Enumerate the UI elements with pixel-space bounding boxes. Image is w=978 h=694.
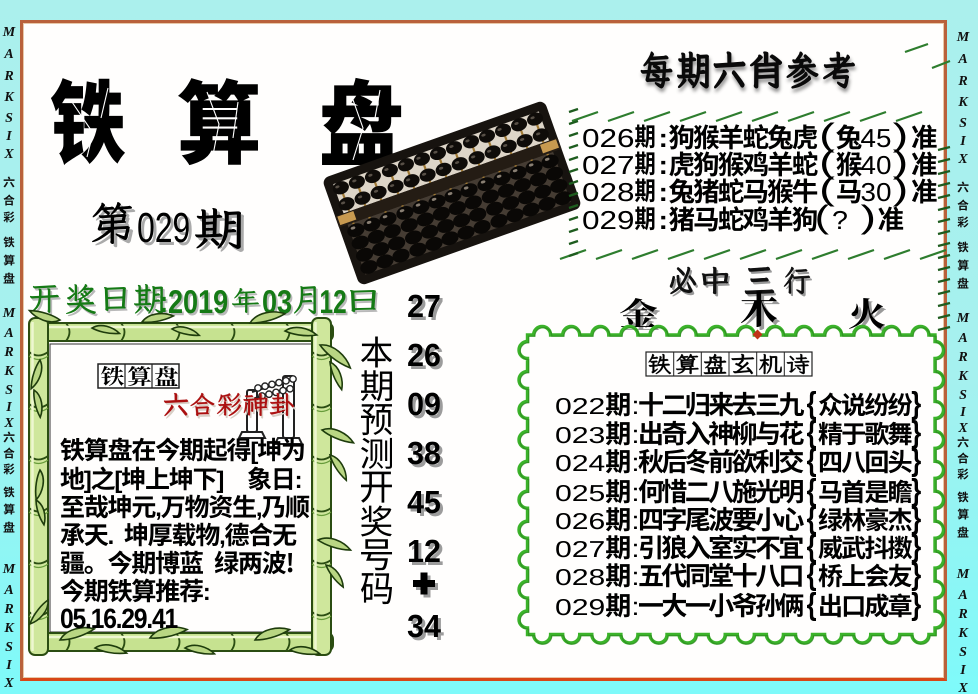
- svg-text:K: K: [3, 621, 15, 636]
- svg-text:X: X: [3, 676, 14, 691]
- svg-text:A: A: [3, 326, 13, 341]
- svg-text:S: S: [959, 645, 967, 660]
- svg-text:K: K: [957, 369, 969, 384]
- svg-text:M: M: [956, 567, 970, 582]
- svg-text:R: R: [3, 345, 13, 360]
- svg-text:X: X: [3, 416, 14, 431]
- svg-text:M: M: [956, 311, 970, 326]
- svg-text:K: K: [3, 364, 15, 379]
- svg-text:A: A: [957, 331, 967, 346]
- svg-text:M: M: [2, 306, 16, 321]
- svg-text:S: S: [959, 116, 967, 131]
- svg-text:K: K: [3, 90, 15, 105]
- svg-text:I: I: [5, 658, 12, 673]
- svg-text:K: K: [957, 95, 969, 110]
- svg-text:X: X: [957, 681, 968, 694]
- svg-text:R: R: [957, 350, 967, 365]
- svg-text:I: I: [959, 663, 966, 678]
- svg-text:R: R: [957, 74, 967, 89]
- svg-text:I: I: [5, 400, 12, 415]
- svg-text:K: K: [957, 626, 969, 641]
- svg-text:A: A: [957, 52, 967, 67]
- svg-text:S: S: [5, 111, 13, 126]
- svg-text:M: M: [2, 562, 16, 577]
- svg-text:M: M: [2, 25, 16, 40]
- svg-text:S: S: [5, 383, 13, 398]
- svg-text:R: R: [3, 602, 13, 617]
- svg-text:I: I: [5, 129, 12, 144]
- svg-text:R: R: [957, 607, 967, 622]
- svg-text:R: R: [3, 69, 13, 84]
- svg-text:X: X: [3, 147, 14, 162]
- svg-text:I: I: [959, 405, 966, 420]
- svg-text:X: X: [957, 152, 968, 167]
- svg-text:A: A: [3, 47, 13, 62]
- svg-text:A: A: [957, 588, 967, 603]
- svg-text:X: X: [957, 421, 968, 436]
- svg-text:M: M: [956, 30, 970, 45]
- svg-text:I: I: [959, 134, 966, 149]
- svg-text:S: S: [5, 640, 13, 655]
- svg-text:A: A: [3, 583, 13, 598]
- svg-text:S: S: [959, 388, 967, 403]
